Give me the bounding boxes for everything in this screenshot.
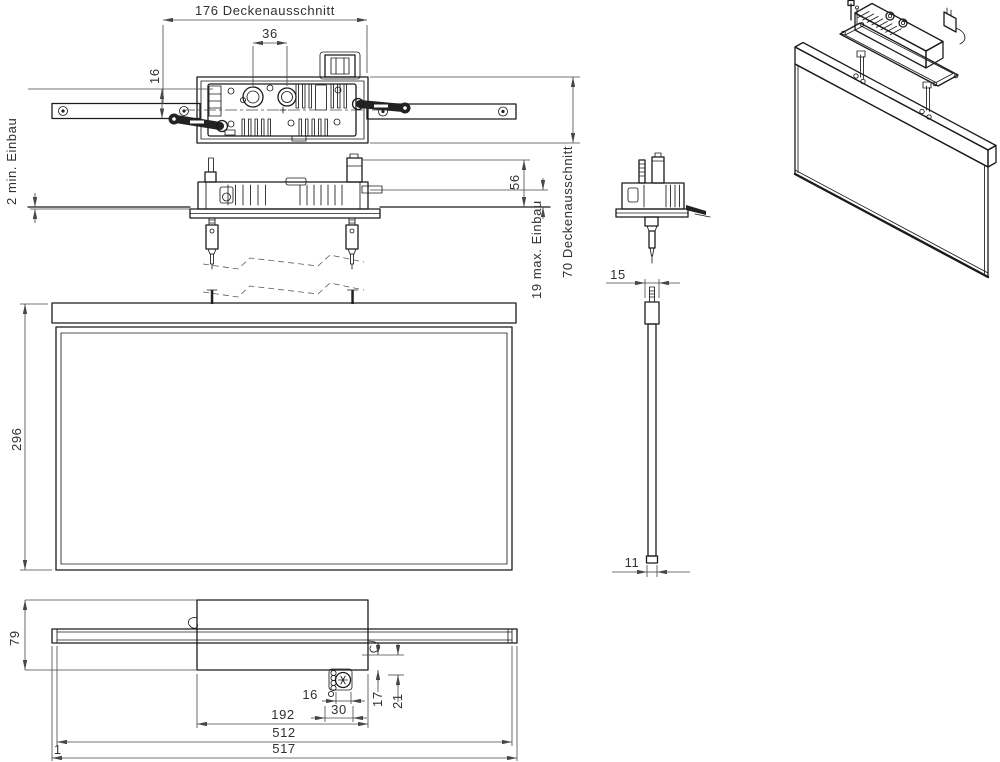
drawing-canvas: 176 Deckenausschnitt 36 16 70 Deckenauss…: [0, 0, 1000, 762]
side-view: 2 min. Einbau 56 19 max. Einbau: [4, 118, 550, 299]
dim-label-panel-height: 296: [9, 428, 24, 452]
dim-panel-thickness: 11: [612, 555, 690, 577]
bottom-view: 79 16 30 17: [7, 600, 517, 761]
vent-slots: [225, 84, 347, 141]
dim-label-cutout-depth: 70 Deckenausschnitt: [560, 146, 575, 278]
dim-label-gland-spacing: 36: [262, 26, 278, 41]
panel-outer: [56, 327, 512, 570]
dim-offset-b: 21: [388, 643, 405, 709]
panel-inner-frame: [61, 333, 507, 564]
dim-detail-pitch: 30: [311, 702, 367, 722]
suspension-stud-right: [347, 154, 362, 182]
iso-connector: [944, 8, 965, 44]
dim-label-offset-a: 17: [370, 691, 385, 707]
dim-label-above-ceiling: 56: [507, 174, 522, 190]
dim-max-recess: 19 max. Einbau: [370, 178, 548, 299]
dim-label-overall-depth: 79: [7, 630, 22, 646]
dim-label-max-recess: 19 max. Einbau: [529, 200, 544, 299]
dim-panel-length: 512: [57, 646, 512, 746]
cable-curl: [188, 618, 197, 629]
dim-overall-length: 517 1: [52, 646, 517, 761]
dim-overall-depth: 79: [7, 600, 197, 670]
dim-label-cutout-width: 176 Deckenausschnitt: [195, 3, 335, 18]
dim-label-offset-b: 21: [390, 693, 405, 709]
dim-label-tray-length: 192: [271, 707, 295, 722]
heatsink-fins-right: [300, 185, 342, 205]
iso-antenna: [848, 1, 859, 25]
dim-label-panel-length: 512: [272, 725, 296, 740]
bottom-bar: [52, 629, 517, 643]
dim-label-overall-length: 517: [272, 741, 296, 756]
heatsink-fins-left: [228, 185, 266, 205]
dim-label-min-recess: 2 min. Einbau: [4, 118, 19, 205]
end-view: [616, 153, 710, 263]
end-clamp-arm: [686, 205, 710, 217]
dim-label-rail-offset: 16: [147, 68, 162, 84]
center-mark: [280, 107, 286, 113]
isometric-view: [795, 1, 996, 278]
end-pendant: [645, 217, 658, 263]
dim-profile-width: 15: [606, 267, 680, 298]
break-line-lower: [203, 283, 364, 297]
edge-panel-body: [648, 324, 656, 556]
pendant-rod-left: [206, 218, 218, 269]
break-line-upper: [203, 255, 364, 269]
stud-threaded: [639, 160, 645, 183]
iso-rod-left: [857, 51, 865, 79]
edge-bottom-cap: [647, 556, 658, 563]
end-fins: [666, 185, 680, 207]
trim-flange: [190, 209, 380, 218]
suspension-stud-left: [205, 158, 216, 182]
terminal-ladder: [209, 86, 221, 116]
end-flange: [616, 209, 688, 217]
suspension-rods-break: [203, 255, 364, 304]
iso-panel: [795, 43, 996, 278]
rod-stub-right: [348, 290, 358, 304]
dim-label-detail-pitch: 30: [331, 702, 347, 717]
terminal-box: [320, 52, 360, 79]
dim-label-detail-width: 16: [302, 687, 318, 702]
technical-drawing: 176 Deckenausschnitt 36 16 70 Deckenauss…: [0, 0, 1000, 762]
stud-cylinder: [652, 153, 664, 183]
rod-stub-left: [207, 290, 217, 304]
dim-label-profile-width: 15: [610, 267, 626, 282]
panel-edge-view: 15 11: [606, 267, 690, 577]
edge-threaded-tip: [650, 287, 655, 302]
pendant-rod-right: [346, 218, 358, 269]
dim-label-panel-thickness: 11: [625, 555, 640, 570]
dim-mark: 1: [54, 743, 62, 757]
top-view: 176 Deckenausschnitt 36 16 70 Deckenauss…: [28, 3, 580, 278]
dim-panel-height: 296: [9, 304, 52, 570]
gland-detail: [328, 669, 352, 697]
panel-top-profile: [52, 303, 516, 323]
dim-above-ceiling: 56: [362, 160, 530, 207]
cable-gland-left: [243, 87, 263, 107]
gear-tray: [197, 600, 368, 670]
edge-top-profile: [645, 302, 659, 324]
cable-gland-right: [278, 88, 296, 106]
housing-body: [198, 182, 368, 209]
side-wing: [362, 186, 382, 193]
front-view: 296: [9, 303, 516, 570]
